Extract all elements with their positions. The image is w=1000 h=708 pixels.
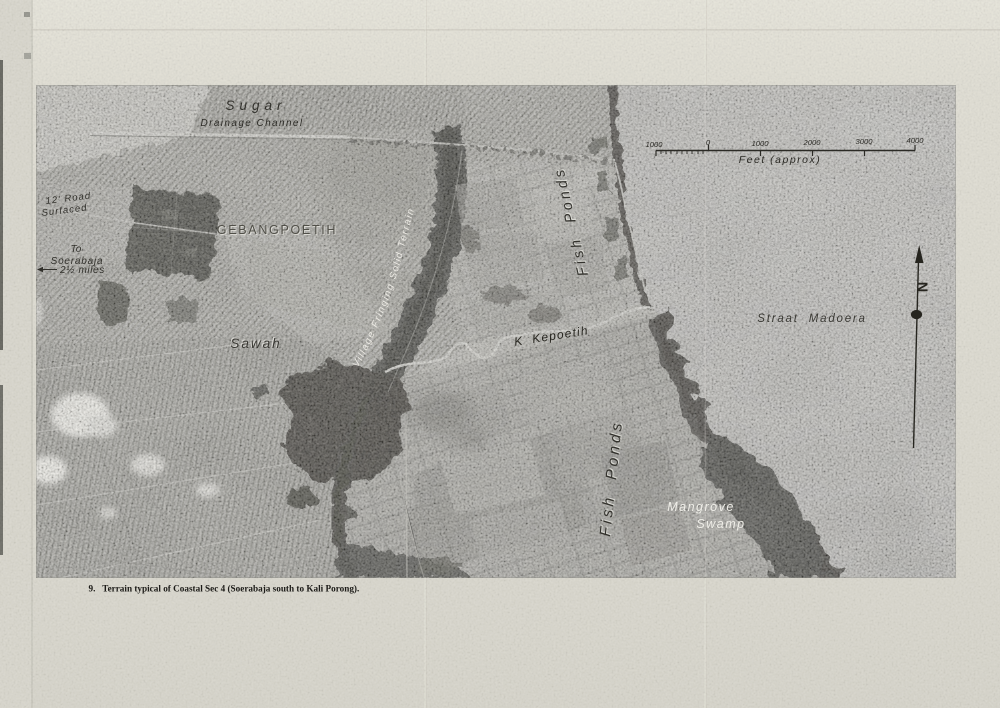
svg-text:To: To [71, 244, 82, 255]
svg-text:Straat Madoera: Straat Madoera [757, 313, 866, 325]
svg-text:3000: 3000 [856, 137, 874, 146]
svg-text:Drainage Channel: Drainage Channel [200, 118, 303, 129]
svg-text:2½ miles: 2½ miles [59, 265, 105, 276]
svg-text:Swamp: Swamp [696, 517, 745, 531]
svg-text:Sugar: Sugar [225, 98, 286, 113]
svg-text:Sawah: Sawah [230, 336, 281, 351]
svg-text:1000: 1000 [752, 139, 770, 148]
svg-text:Feet (approx): Feet (approx) [739, 154, 822, 166]
svg-text:GEBANGPOETIH: GEBANGPOETIH [217, 223, 337, 237]
svg-text:1000: 1000 [646, 140, 664, 149]
svg-text:2000: 2000 [803, 138, 822, 147]
svg-text:4000: 4000 [907, 136, 925, 145]
svg-text:N: N [914, 282, 930, 292]
svg-text:Mangrove: Mangrove [667, 500, 735, 514]
svg-text:9. Terrain typical of Coasta: 9. Terrain typical of Coastal Sec 4 (Soe… [89, 584, 360, 594]
